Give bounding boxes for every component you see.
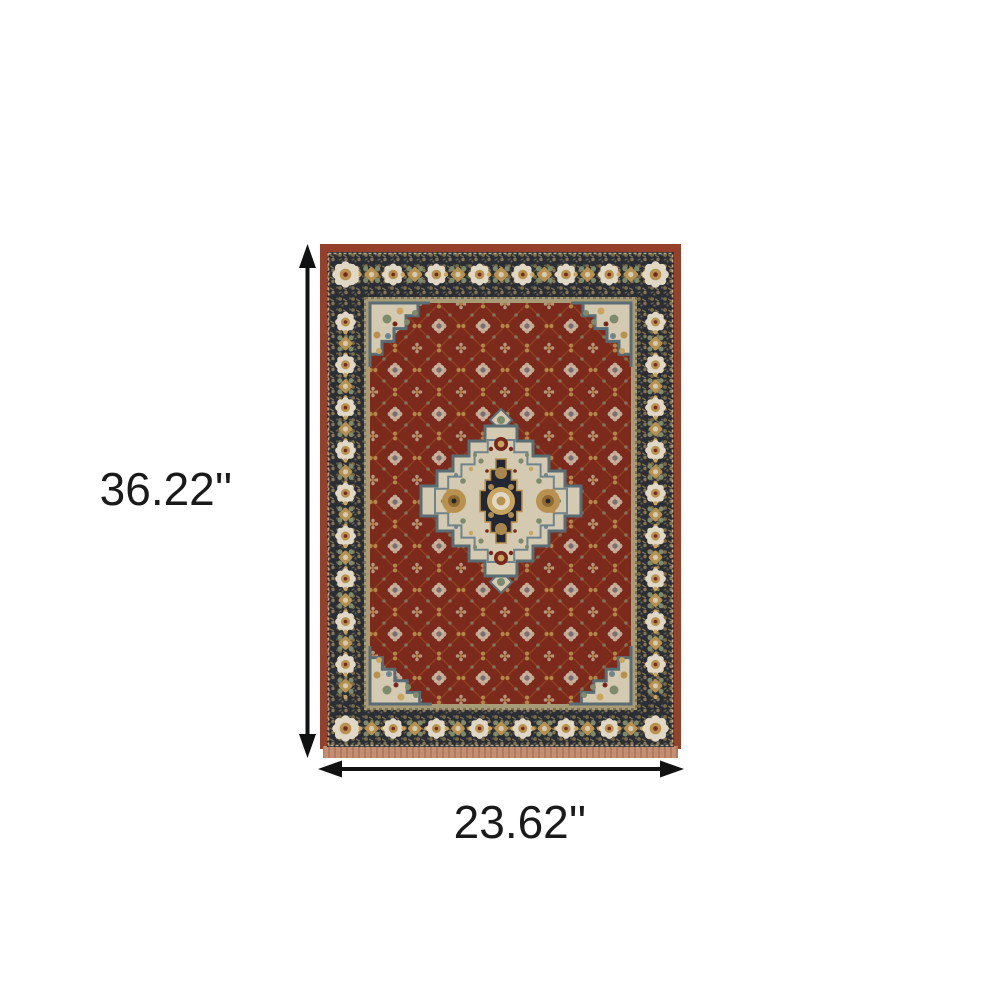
svg-text:36.22'': 36.22'' [100, 463, 233, 515]
svg-text:23.62'': 23.62'' [454, 796, 587, 848]
